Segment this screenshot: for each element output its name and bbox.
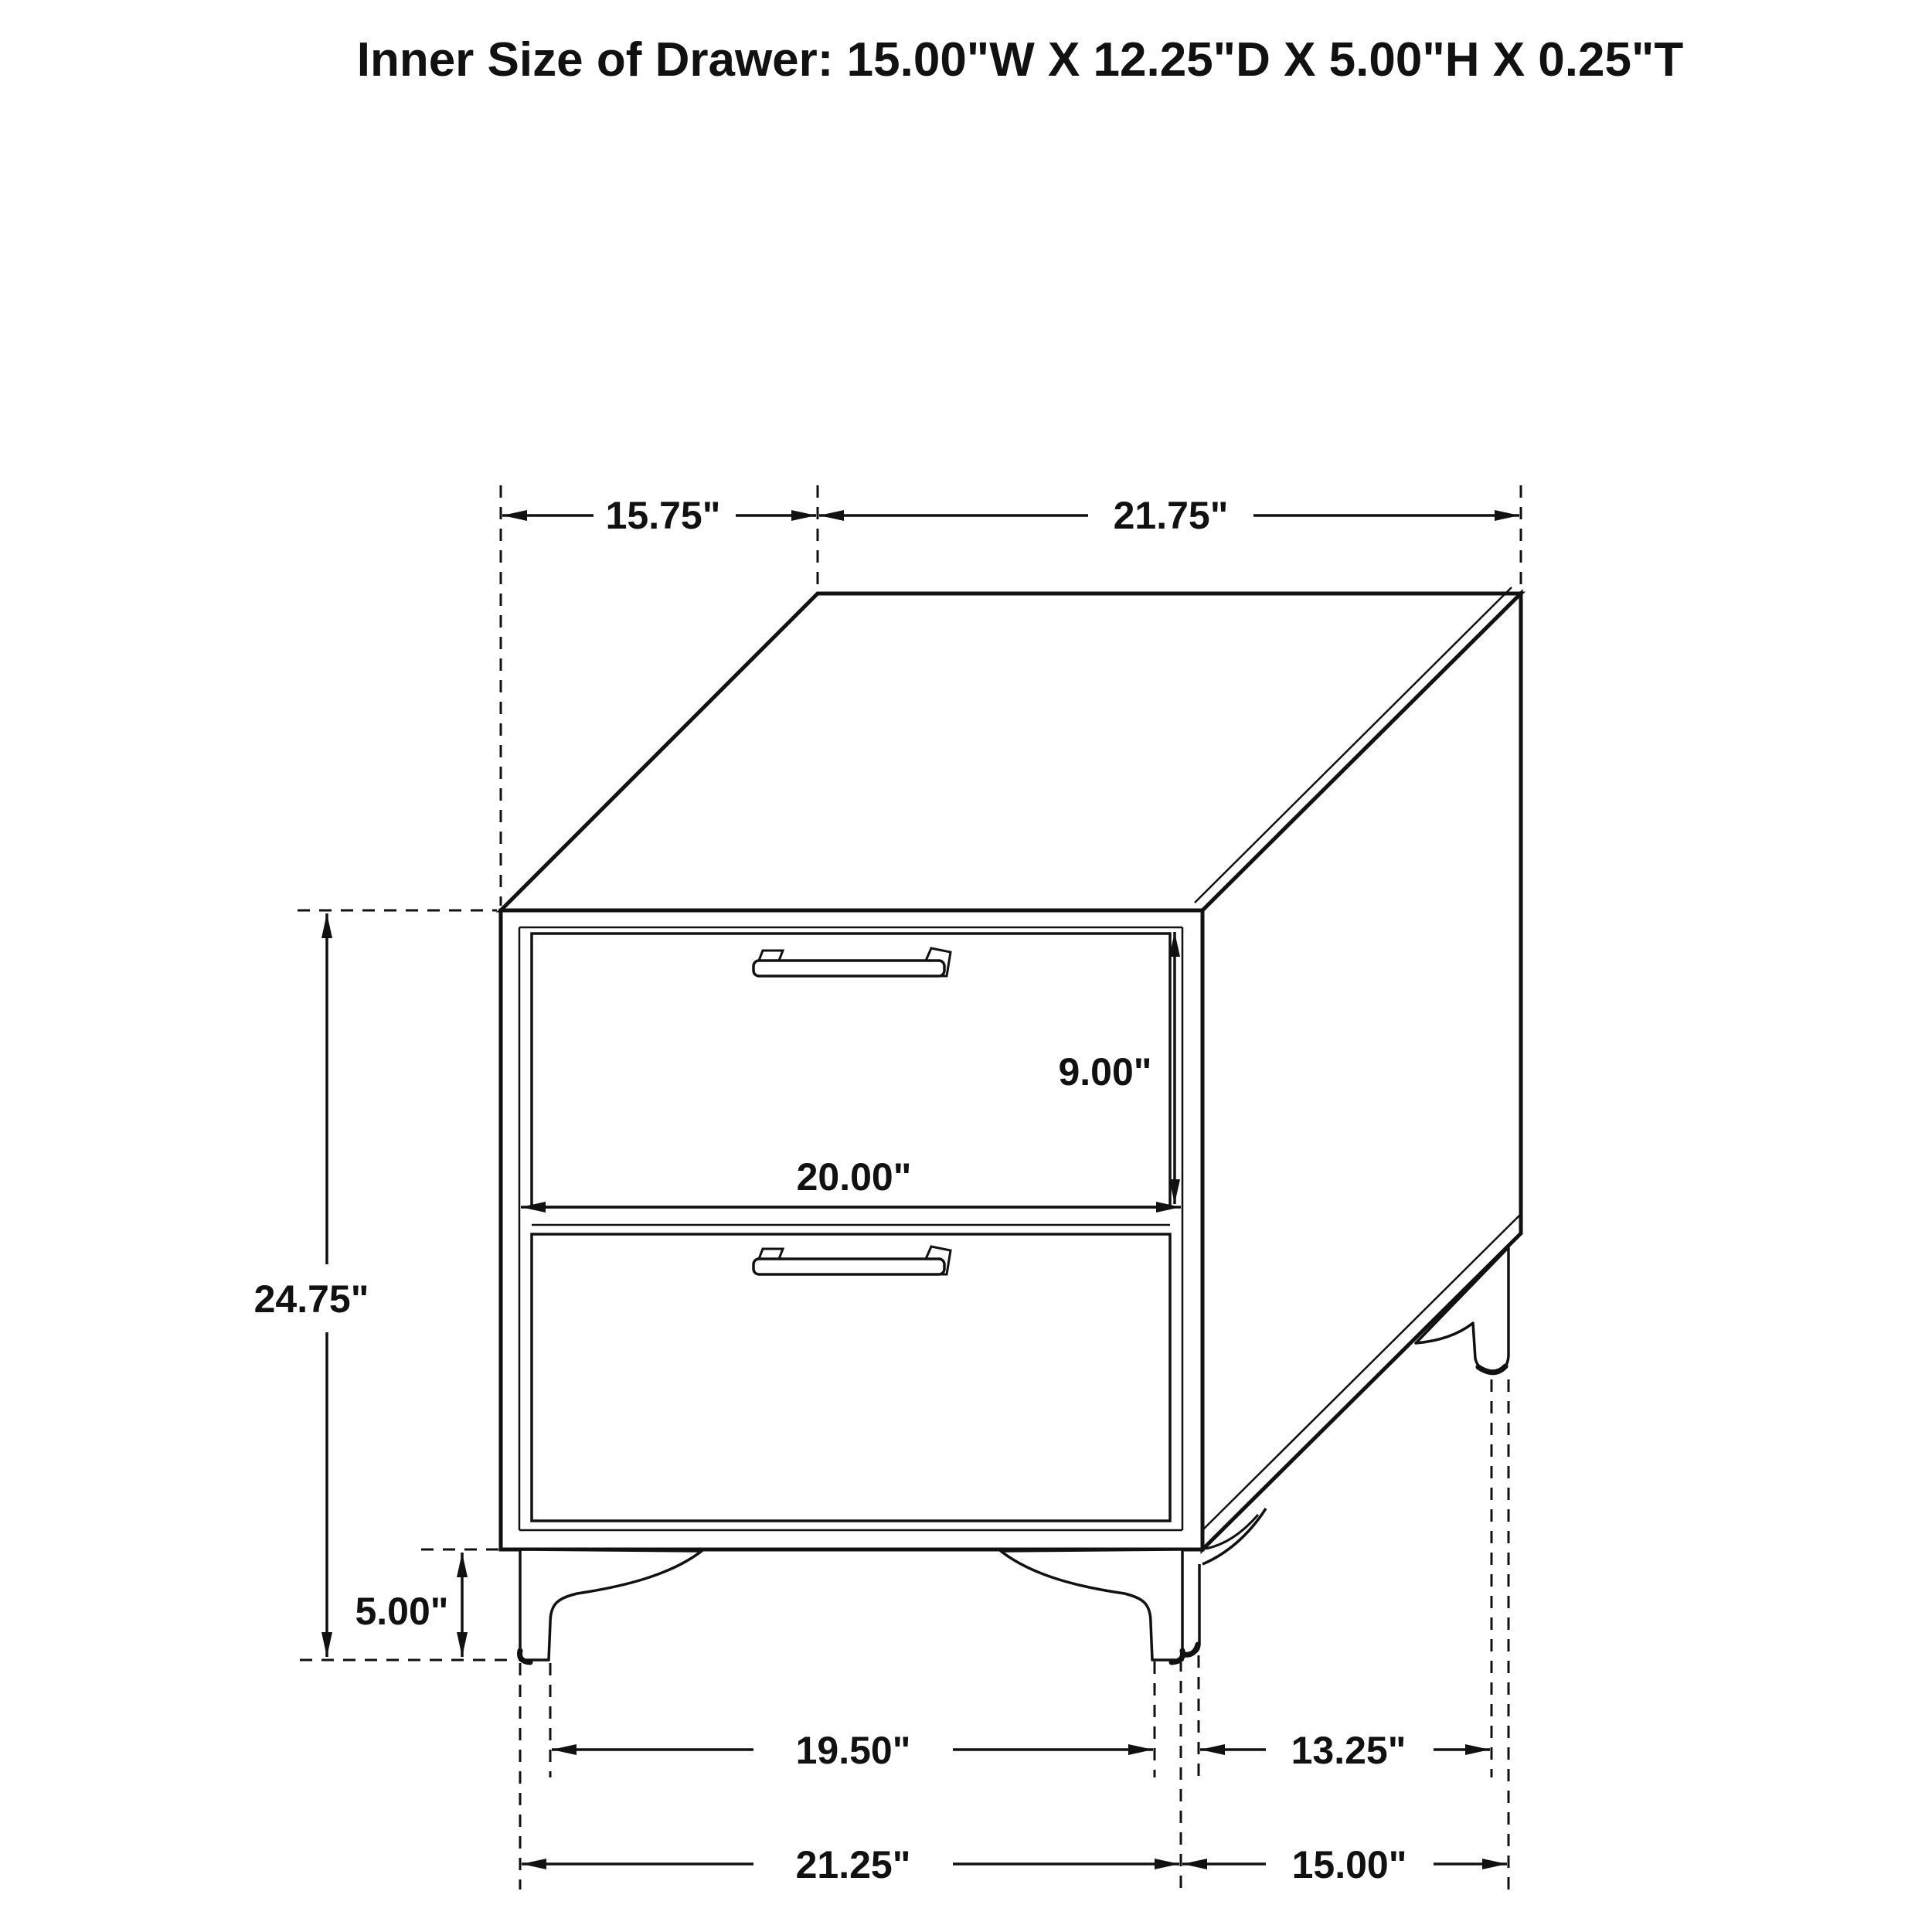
dim-label-top-depth: 15.75" [606,494,721,537]
dim-label-drawer-width: 20.00" [797,1155,912,1199]
dim-label-opening-height: 9.00" [1058,1050,1151,1094]
front-right-leg [1001,1549,1182,1660]
handle-bar [753,961,944,976]
drawing-title: Inner Size of Drawer: 15.00"W X 12.25"D … [357,33,1684,87]
front-left-leg [520,1549,702,1660]
dimension-diagram-page: Inner Size of Drawer: 15.00"W X 12.25"D … [0,0,1932,1932]
dim-label-front-feet-span: 19.50" [796,1729,911,1772]
nightstand-dimension-drawing: Inner Size of Drawer: 15.00"W X 12.25"D … [0,0,1932,1932]
side-foot-tip [1184,1645,1198,1655]
dim-label-overall-height: 24.75" [254,1277,369,1321]
handle-left-tab [759,951,783,961]
dim-label-top-width: 21.75" [1114,494,1229,537]
drawer-2-front [532,1234,1170,1521]
handle-bar [753,1259,944,1274]
dim-label-overall-width: 21.25" [796,1843,911,1886]
leg-side-edge [1185,1564,1199,1654]
dim-label-overall-depth: 15.00" [1292,1843,1407,1886]
dim-label-leg-height: 5.00" [355,1590,448,1633]
handle-left-tab [759,1249,783,1259]
dim-label-side-feet-span: 13.25" [1291,1729,1406,1772]
